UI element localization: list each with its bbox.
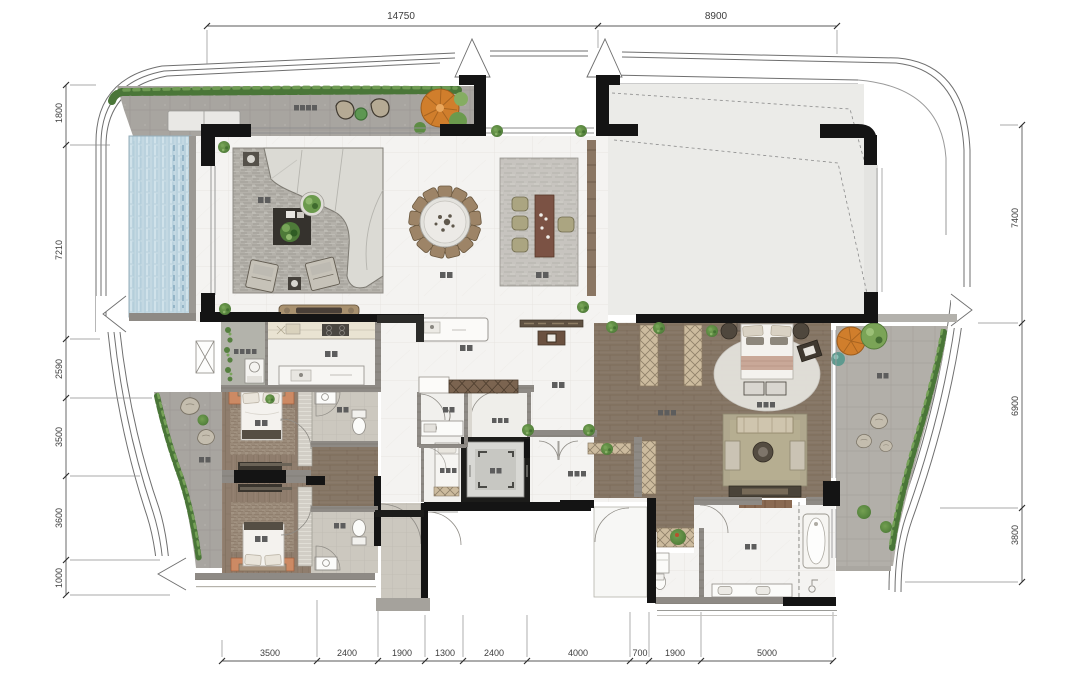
svg-text:14750: 14750 xyxy=(387,11,415,22)
svg-text:700: 700 xyxy=(632,648,647,658)
svg-text:1300: 1300 xyxy=(435,648,455,658)
svg-text:3500: 3500 xyxy=(54,427,64,447)
svg-text:7400: 7400 xyxy=(1010,208,1020,228)
svg-text:3600: 3600 xyxy=(54,508,64,528)
svg-text:3800: 3800 xyxy=(1010,525,1020,545)
svg-text:4000: 4000 xyxy=(568,648,588,658)
svg-text:2400: 2400 xyxy=(484,648,504,658)
svg-text:3500: 3500 xyxy=(260,648,280,658)
svg-text:8900: 8900 xyxy=(705,11,728,22)
svg-text:6900: 6900 xyxy=(1010,396,1020,416)
svg-text:2590: 2590 xyxy=(54,359,64,379)
svg-text:1000: 1000 xyxy=(54,568,64,588)
svg-text:1800: 1800 xyxy=(54,103,64,123)
svg-text:7210: 7210 xyxy=(54,240,64,260)
svg-text:1900: 1900 xyxy=(665,648,685,658)
svg-text:5000: 5000 xyxy=(757,648,777,658)
svg-text:2400: 2400 xyxy=(337,648,357,658)
svg-text:1900: 1900 xyxy=(392,648,412,658)
